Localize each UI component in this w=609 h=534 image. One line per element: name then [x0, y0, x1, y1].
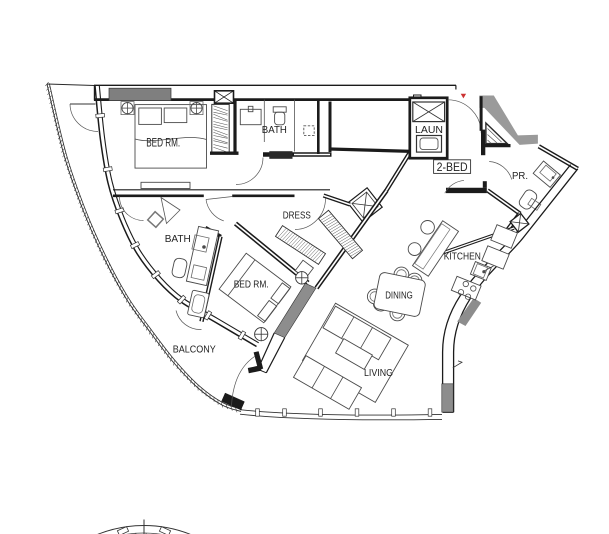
- svg-text:KITCHEN: KITCHEN: [444, 251, 481, 263]
- svg-text:BATH: BATH: [165, 233, 191, 245]
- svg-text:2-BED: 2-BED: [437, 162, 468, 174]
- svg-text:BATH: BATH: [262, 124, 287, 136]
- svg-text:BALCONY: BALCONY: [173, 344, 216, 356]
- svg-text:BED RM.: BED RM.: [234, 279, 269, 291]
- svg-text:DINING: DINING: [385, 290, 413, 302]
- svg-text:LIVING: LIVING: [364, 367, 393, 379]
- svg-text:PR.: PR.: [512, 170, 528, 182]
- svg-text:DRESS: DRESS: [283, 210, 311, 222]
- svg-text:BED RM.: BED RM.: [146, 138, 180, 150]
- svg-text:LAUN: LAUN: [415, 124, 443, 136]
